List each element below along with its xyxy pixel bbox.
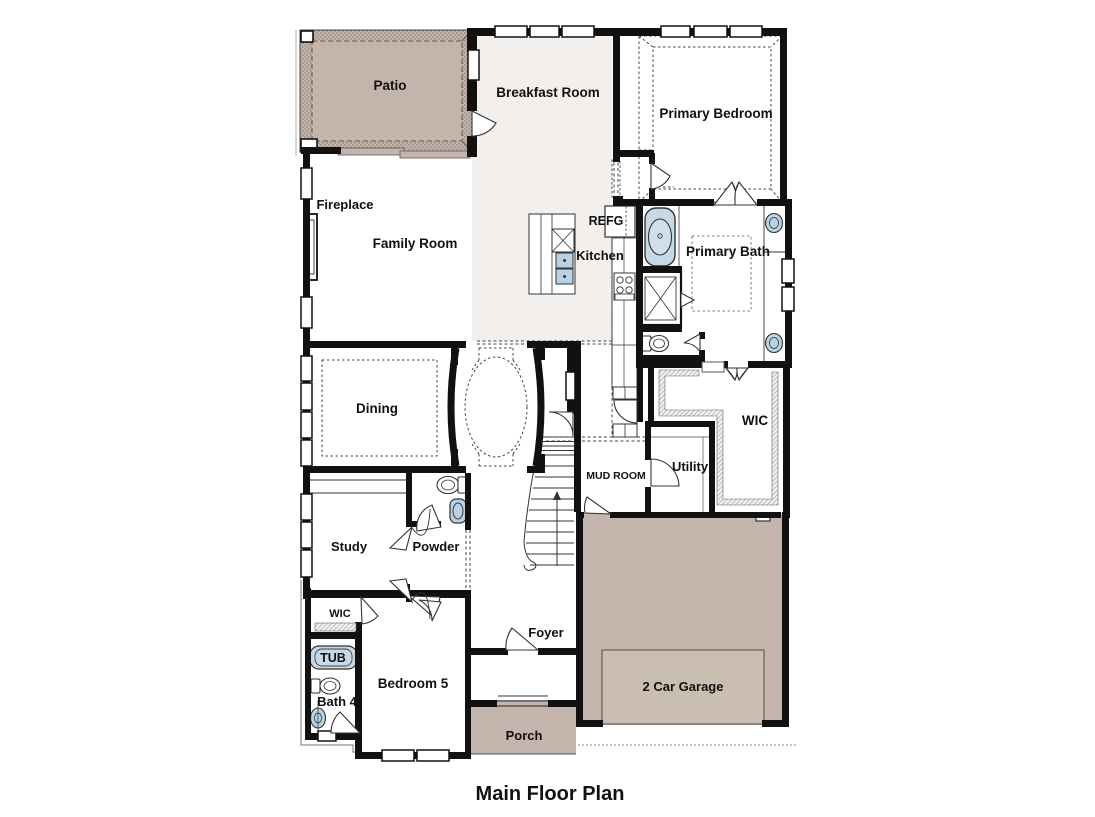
svg-text:MUD ROOM: MUD ROOM — [586, 470, 646, 482]
svg-text:Powder: Powder — [413, 539, 460, 554]
svg-text:Primary Bath: Primary Bath — [686, 244, 770, 259]
svg-text:Utility: Utility — [672, 459, 709, 474]
svg-text:Study: Study — [331, 539, 368, 554]
svg-text:Family Room: Family Room — [373, 236, 458, 251]
svg-text:Breakfast Room: Breakfast Room — [496, 85, 600, 100]
svg-text:Bath 4: Bath 4 — [317, 694, 358, 709]
svg-text:Porch: Porch — [506, 728, 543, 743]
svg-text:2 Car Garage: 2 Car Garage — [643, 679, 724, 694]
svg-text:Dining: Dining — [356, 401, 398, 416]
svg-text:Primary Bedroom: Primary Bedroom — [659, 106, 772, 121]
svg-text:Bedroom 5: Bedroom 5 — [378, 676, 449, 691]
svg-text:Main Floor Plan: Main Floor Plan — [476, 783, 625, 805]
svg-text:Patio: Patio — [373, 78, 406, 93]
svg-text:REFG: REFG — [589, 214, 624, 228]
svg-text:WIC: WIC — [329, 608, 350, 620]
svg-text:TUB: TUB — [320, 651, 346, 665]
svg-text:Fireplace: Fireplace — [316, 197, 373, 212]
svg-text:Kitchen: Kitchen — [576, 248, 624, 263]
svg-text:Foyer: Foyer — [528, 625, 563, 640]
svg-text:WIC: WIC — [742, 413, 768, 428]
